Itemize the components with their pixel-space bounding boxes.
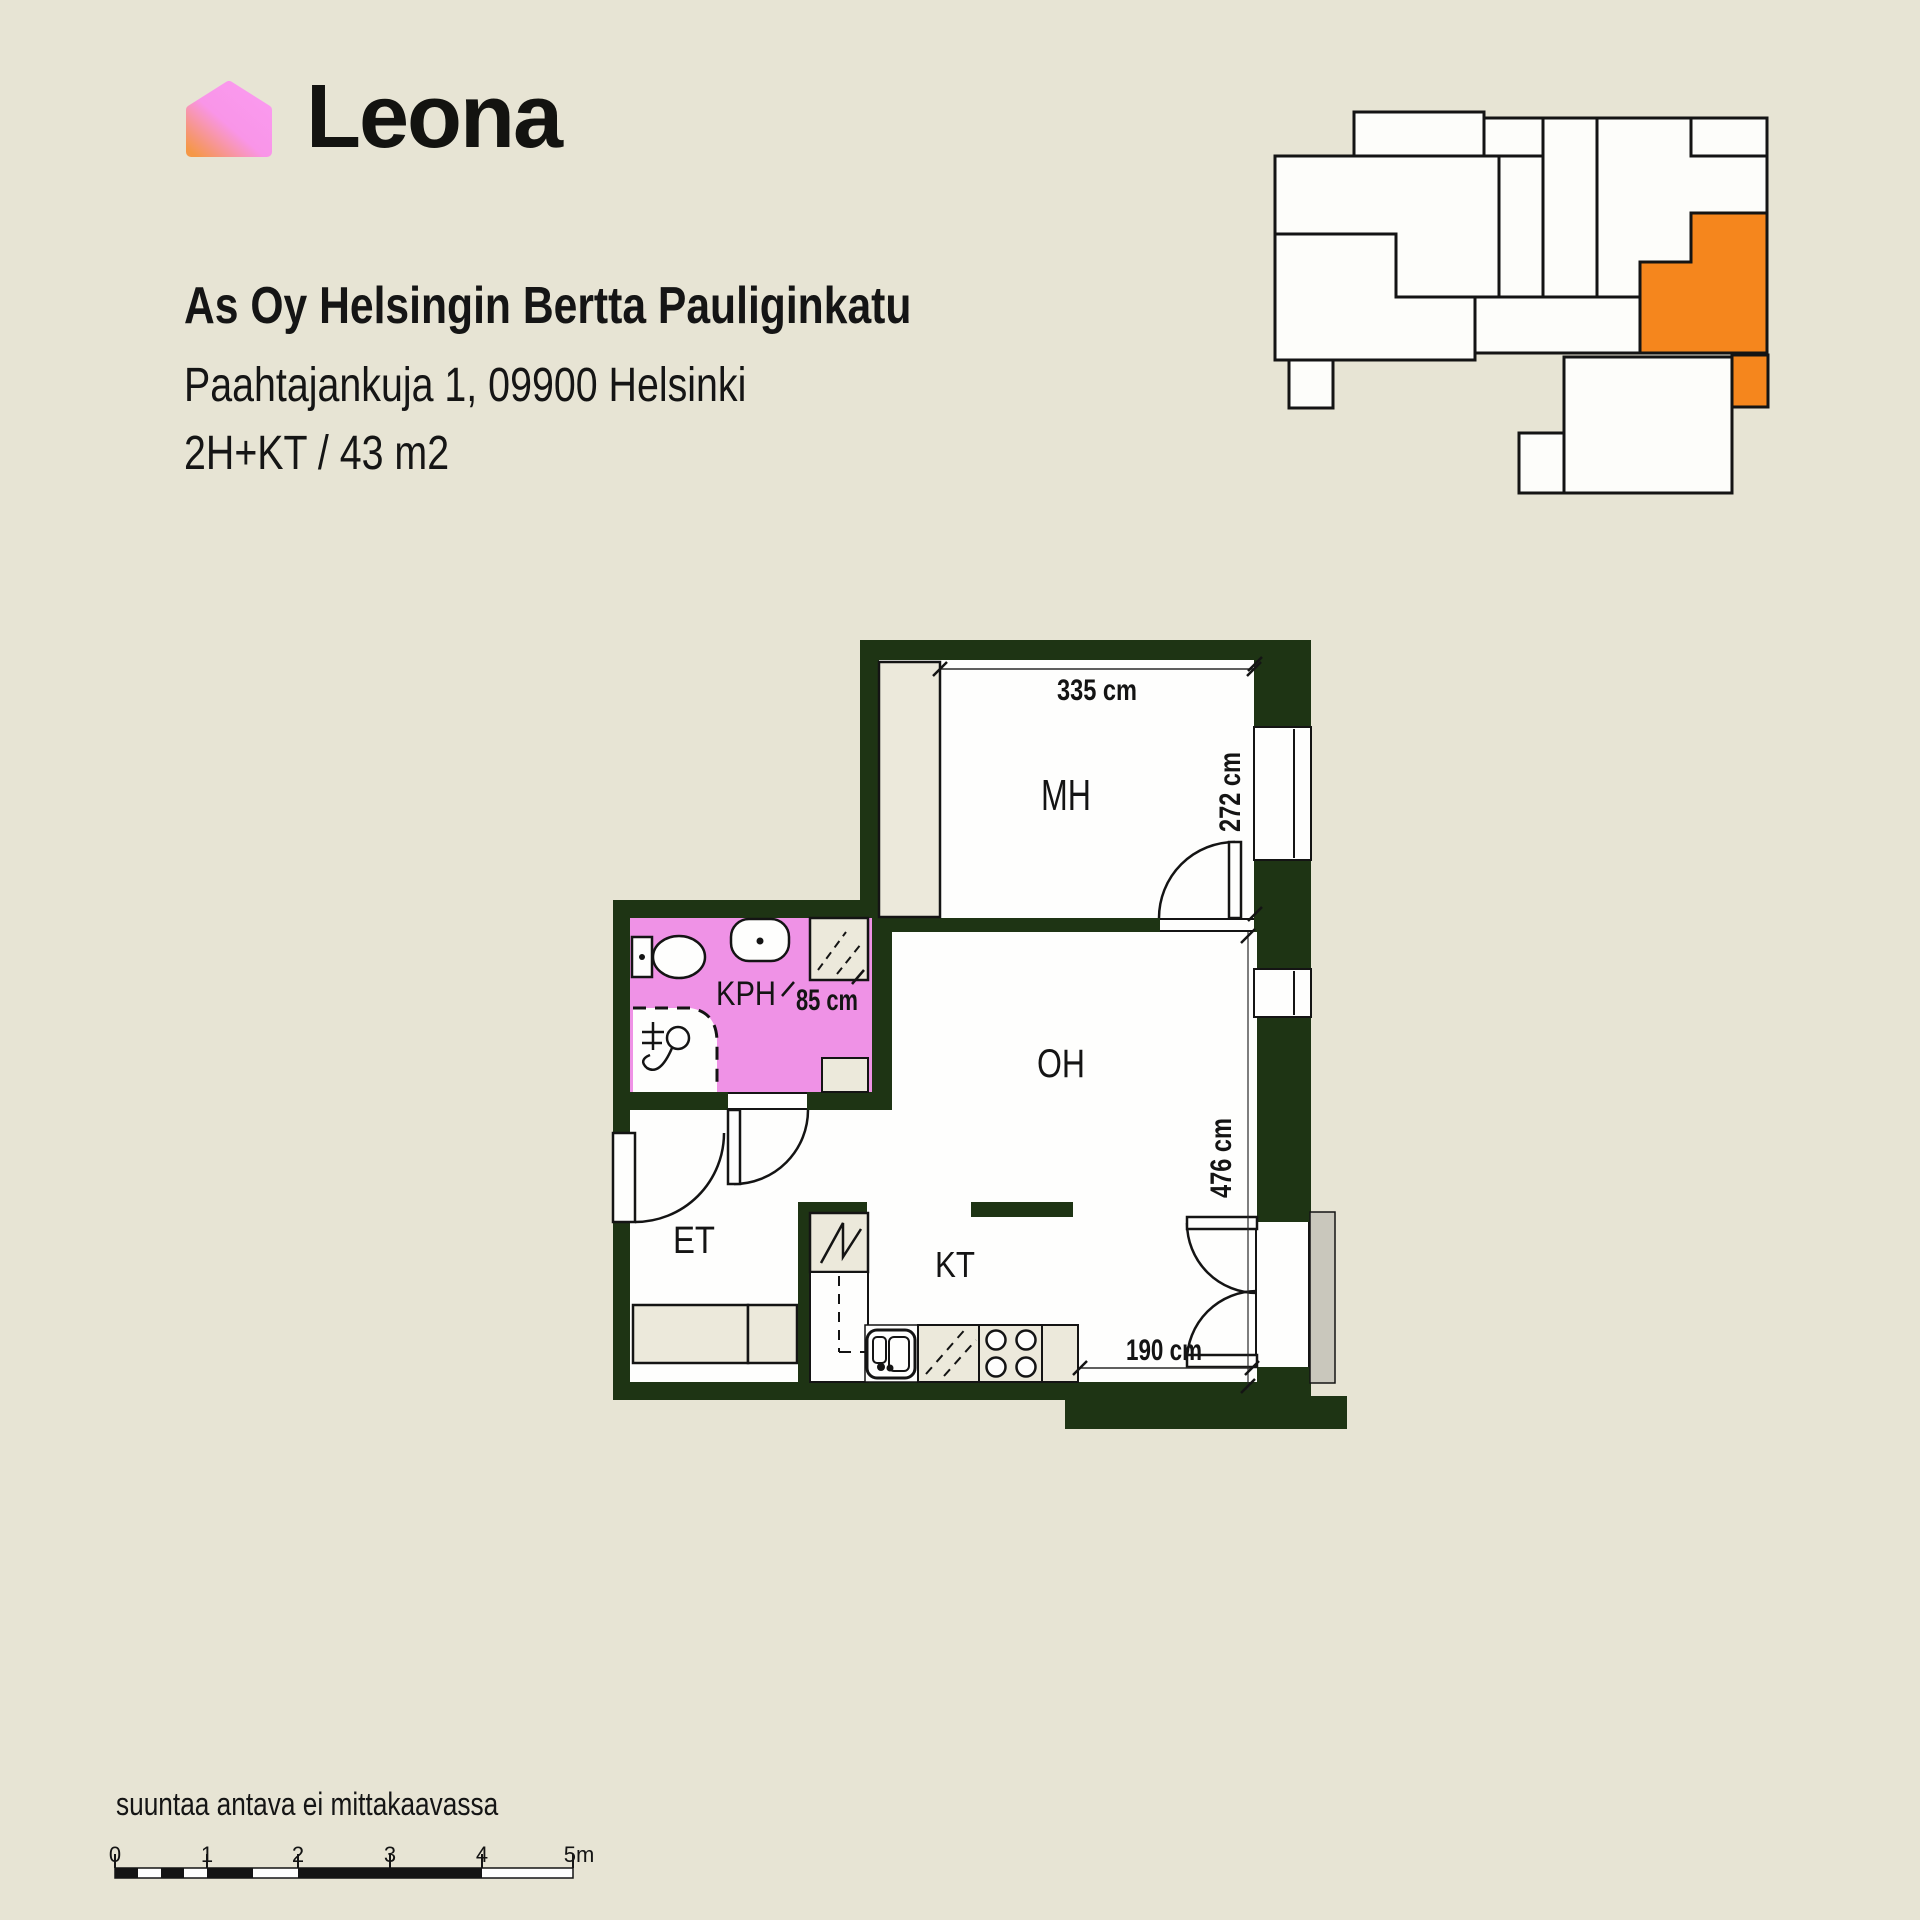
entry-closets — [633, 1305, 797, 1363]
label-living-room: OH — [1037, 1042, 1085, 1086]
door-leaf-balcony-upper — [1187, 1217, 1257, 1229]
label-bedroom: MH — [1041, 771, 1091, 820]
toilet-bowl-icon — [653, 936, 705, 978]
dim-bedroom-width: 335 cm — [1057, 674, 1137, 707]
brand-wordmark: Leona — [306, 72, 561, 162]
scale-label-3: 3 — [384, 1842, 396, 1867]
site-plan — [1270, 100, 1785, 500]
scale-label-1: 1 — [201, 1842, 213, 1867]
door-leaf-entry — [613, 1133, 635, 1222]
window-mh — [1254, 727, 1311, 860]
window-oh — [1254, 969, 1311, 1017]
site-plan-unit — [1564, 357, 1732, 493]
floor-plan: 335 cm 272 cm 476 cm 190 cm 85 cm MH OH … — [595, 630, 1355, 1440]
site-plan-unit — [1289, 360, 1333, 408]
scale-bar: 0 1 2 3 4 5m — [100, 1840, 620, 1890]
site-plan-highlighted-unit-balcony — [1732, 355, 1768, 407]
site-plan-unit — [1484, 118, 1543, 156]
site-plan-unit — [1354, 112, 1484, 156]
door-leaf-kph — [728, 1110, 740, 1184]
housing-company-title: As Oy Helsingin Bertta Pauliginkatu — [184, 276, 911, 336]
fridge-icon — [810, 1213, 868, 1272]
dim-living-bottom: 190 cm — [1126, 1334, 1202, 1367]
site-plan-unit — [1691, 118, 1767, 156]
door-leaf-mh — [1229, 842, 1241, 918]
leona-house-logo-icon — [183, 80, 275, 160]
scale-label-5m: 5m — [564, 1842, 595, 1867]
disclaimer-text: suuntaa antava ei mittakaavassa — [116, 1786, 498, 1823]
apartment-type-line: 2H+KT / 43 m2 — [184, 426, 449, 481]
kitchen-island-bar — [971, 1202, 1073, 1217]
closet-icon — [748, 1305, 797, 1363]
balcony-slab — [1310, 1212, 1335, 1383]
kitchen-counter — [810, 1272, 868, 1382]
wardrobe-icon — [879, 662, 940, 917]
label-entrance: ET — [673, 1220, 715, 1262]
scale-label-0: 0 — [109, 1842, 121, 1867]
scale-bar-segments — [115, 1868, 482, 1878]
scale-label-2: 2 — [292, 1842, 304, 1867]
duct-box — [822, 1058, 868, 1092]
site-plan-unit — [1475, 297, 1640, 353]
closet-icon — [633, 1305, 748, 1363]
site-plan-unit — [1519, 433, 1564, 493]
dim-bedroom-depth: 272 cm — [1214, 752, 1247, 832]
scale-label-4: 4 — [476, 1842, 488, 1867]
floorplan-page: Leona As Oy Helsingin Bertta Pauliginkat… — [0, 0, 1920, 1920]
label-kitchen: KT — [935, 1244, 975, 1285]
site-plan-unit — [1543, 118, 1597, 299]
address-line: Paahtajankuja 1, 09900 Helsinki — [184, 358, 746, 413]
site-plan-unit — [1499, 156, 1543, 299]
shower-area — [633, 1008, 717, 1092]
dim-bathroom-door: 85 cm — [796, 984, 858, 1017]
dim-living-depth: 476 cm — [1205, 1118, 1238, 1198]
kitchen-counter-end — [1042, 1325, 1078, 1382]
label-bathroom: KPH — [716, 975, 776, 1013]
balcony-door-opening — [1254, 1222, 1311, 1367]
